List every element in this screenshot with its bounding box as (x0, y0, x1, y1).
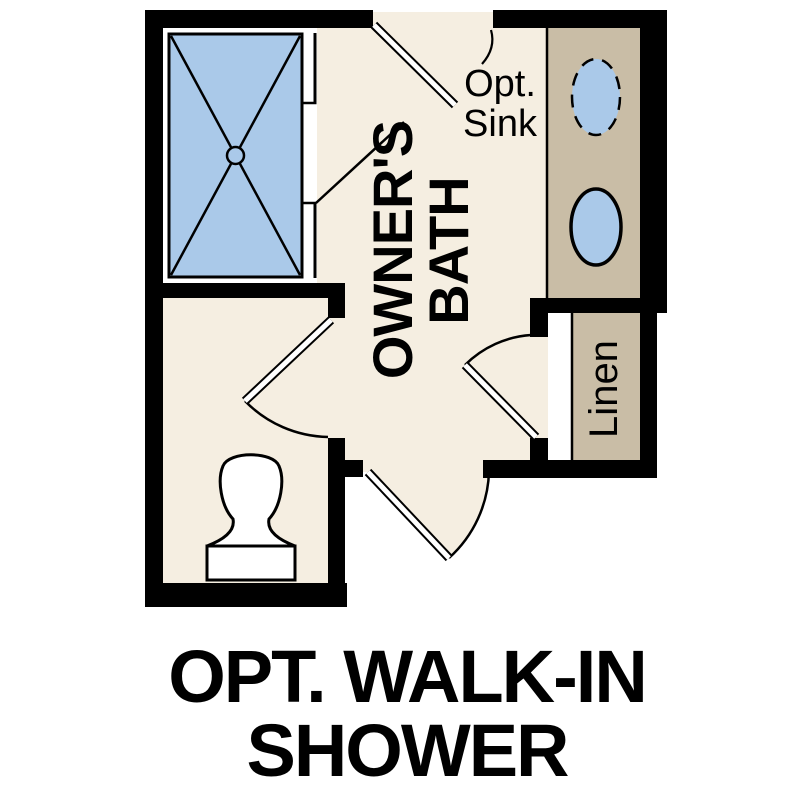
opt-sink-label-line2: Sink (463, 103, 538, 145)
wall-linen-stub-bottom (530, 438, 548, 462)
opt-sink-label-line1: Opt. (464, 63, 536, 105)
floor-plan-page: Opt. Sink OWNER'S BATH Linen OPT. WALK-I… (0, 0, 810, 810)
room-label-line1: OWNER'S (361, 121, 424, 379)
shower-drain (227, 147, 244, 164)
floor-plan-svg: Opt. Sink OWNER'S BATH Linen OPT. WALK-I… (0, 0, 810, 810)
room-label-line2: BATH (417, 177, 480, 324)
wall-left (145, 10, 163, 607)
bottom-door-threshold (363, 455, 483, 472)
wall-shower-divider (145, 283, 345, 298)
wall-bath-bottom (483, 460, 657, 478)
wall-toilet-right-lower (328, 438, 345, 607)
wall-right-upper (640, 10, 667, 313)
wall-toilet-right-upper (328, 283, 345, 318)
caption-line2: SHOWER (247, 709, 569, 792)
wall-linen-stub-top (530, 313, 548, 337)
toilet-door-threshold (326, 318, 345, 438)
linen-label: Linen (582, 340, 626, 438)
toilet-tank (207, 546, 295, 580)
caption-line1: OPT. WALK-IN (168, 635, 646, 718)
sink-basin (571, 189, 621, 265)
top-door-threshold (373, 12, 493, 30)
wall-bath-bottom-stub (345, 460, 363, 477)
wall-right-lower (640, 313, 657, 478)
optional-sink-basin (572, 59, 620, 135)
bottom-door-swing-floor (368, 471, 489, 558)
vanity (547, 28, 640, 298)
wall-top-left (145, 10, 373, 28)
wall-toilet-bottom (145, 583, 347, 607)
